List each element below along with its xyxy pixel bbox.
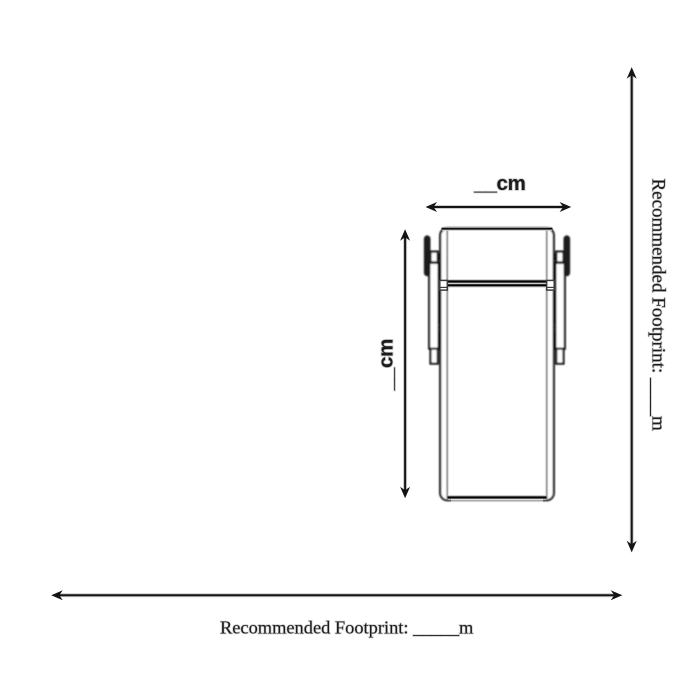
svg-text:__cm: __cm — [473, 172, 525, 195]
svg-text:Recommended Footprint: _____m: Recommended Footprint: _____m — [220, 618, 474, 638]
svg-text:__cm: __cm — [375, 339, 398, 391]
svg-text:Recommended Footprint: ____m: Recommended Footprint: ____m — [648, 179, 669, 431]
